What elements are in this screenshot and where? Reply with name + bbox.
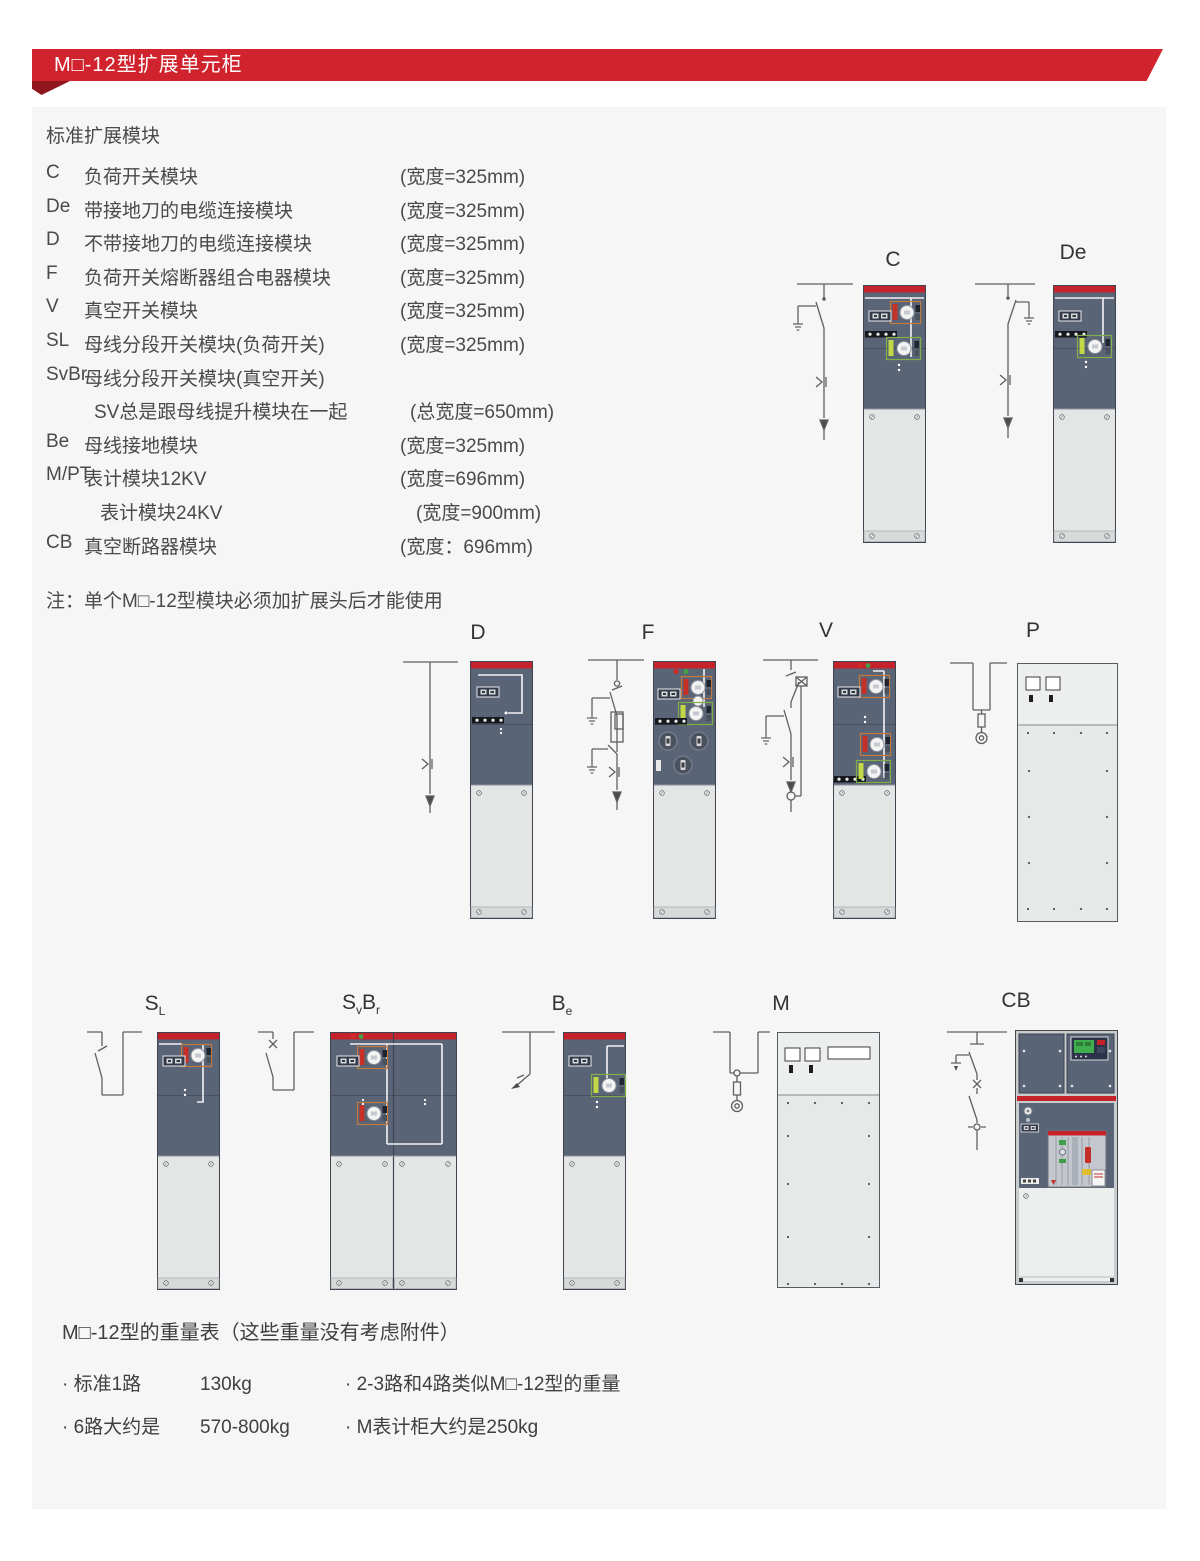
- module-code: F: [46, 263, 84, 297]
- banner-fold-icon: [32, 81, 70, 95]
- module-code: M/PT: [46, 464, 84, 498]
- module-row: SV总是跟母线提升模块在一起(总宽度=650mm): [46, 397, 646, 431]
- module-row: CB真空断路器模块(宽度：696mm): [46, 532, 646, 566]
- schematic-metering-m: [713, 1032, 770, 1112]
- module-code: [46, 498, 84, 532]
- module-name: 不带接地刀的电缆连接模块: [84, 229, 400, 263]
- cabinet-front-v: [834, 662, 896, 919]
- module-name: 母线分段开关模块(真空开关): [84, 364, 400, 398]
- cabinet-label-svbr: SvBr: [342, 991, 380, 1017]
- diagram-cb: [943, 1022, 1121, 1288]
- module-list: 标准扩展模块 C负荷开关模块(宽度=325mm) De带接地刀的电缆连接模块(宽…: [46, 121, 646, 565]
- cabinet-front-d: [471, 662, 533, 919]
- cabinet-label-p: P: [1026, 619, 1040, 643]
- weight-label: · 6路大约是: [62, 1412, 200, 1439]
- weight-label: · 标准1路: [62, 1369, 200, 1396]
- module-code: Be: [46, 431, 84, 465]
- module-code: C: [46, 162, 84, 196]
- schematic-bus-section-svbr: [258, 1032, 314, 1090]
- module-width: (宽度=325mm): [400, 330, 525, 364]
- module-width: (宽度=325mm): [400, 263, 525, 297]
- module-row: V真空开关模块(宽度=325mm): [46, 296, 646, 330]
- schematic-bus-section-sl: [87, 1032, 142, 1095]
- page-title: M□-12型扩展单元柜: [54, 49, 243, 81]
- diagram-be: [498, 1022, 629, 1294]
- module-width: (宽度=696mm): [400, 464, 525, 498]
- diagram-sl: [85, 1022, 223, 1294]
- cabinet-front-cb: [1016, 1031, 1118, 1285]
- diagram-de: [971, 276, 1121, 556]
- module-code: SL: [46, 330, 84, 364]
- module-list-title: 标准扩展模块: [46, 121, 646, 162]
- module-width: (宽度：696mm): [400, 532, 533, 566]
- cabinet-label-cb: CB: [1001, 989, 1030, 1013]
- weight-table-title: M□-12型的重量表（这些重量没有考虑附件）: [62, 1316, 620, 1345]
- module-width: (宽度=325mm): [400, 162, 525, 196]
- module-name: 真空开关模块: [84, 296, 400, 330]
- weight-value: 130kg: [200, 1374, 252, 1395]
- module-name: 表计模块24KV: [84, 498, 416, 532]
- weight-item: · 6路大约是570-800kg: [62, 1412, 345, 1439]
- cabinet-label-de: De: [1060, 241, 1087, 265]
- schematic-circuit-breaker-cb: [947, 1032, 1007, 1150]
- diagram-c: [788, 276, 930, 556]
- cabinet-front-sl: [158, 1033, 220, 1290]
- diagram-f: [580, 650, 720, 930]
- weight-item: · 标准1路130kg: [62, 1369, 345, 1396]
- cabinet-label-be: Be: [552, 992, 573, 1018]
- module-code: CB: [46, 532, 84, 566]
- weight-label: · 2-3路和4路类似M□-12型的重量: [345, 1374, 620, 1395]
- diagram-v: [756, 650, 903, 930]
- diagram-d: [400, 650, 535, 930]
- diagram-svbr: [256, 1022, 460, 1294]
- module-width: (宽度=325mm): [400, 196, 525, 230]
- weight-grid: · 标准1路130kg · 2-3路和4路类似M□-12型的重量 · 6路大约是…: [62, 1369, 620, 1439]
- module-row: Be母线接地模块(宽度=325mm): [46, 431, 646, 465]
- schematic-switch-fuse-f: [587, 660, 644, 810]
- module-width: (宽度=325mm): [400, 296, 525, 330]
- schematic-cable-earth-de: [975, 284, 1035, 438]
- module-code: [46, 397, 84, 431]
- weight-value: 570-800kg: [200, 1417, 290, 1438]
- cabinet-front-be: [564, 1033, 626, 1290]
- weight-table: M□-12型的重量表（这些重量没有考虑附件） · 标准1路130kg · 2-3…: [62, 1316, 620, 1439]
- module-row: SL母线分段开关模块(负荷开关)(宽度=325mm): [46, 330, 646, 364]
- module-name: 表计模块12KV: [84, 464, 400, 498]
- module-width: (宽度=325mm): [400, 229, 525, 263]
- module-row: C负荷开关模块(宽度=325mm): [46, 162, 646, 196]
- module-code: De: [46, 196, 84, 230]
- page: M□-12型扩展单元柜 标准扩展模块 C负荷开关模块(宽度=325mm) De带…: [0, 0, 1200, 1561]
- schematic-bus-earth-be: [502, 1032, 555, 1089]
- module-code: D: [46, 229, 84, 263]
- module-row: SvBr母线分段开关模块(真空开关): [46, 364, 646, 398]
- weight-item: · 2-3路和4路类似M□-12型的重量: [345, 1369, 620, 1396]
- cabinet-label-m: M: [772, 992, 790, 1016]
- schematic-vacuum-switch-v: [761, 660, 818, 812]
- cabinet-label-sl: SL: [145, 992, 166, 1018]
- cabinet-front-m: [778, 1033, 880, 1288]
- title-banner: M□-12型扩展单元柜: [32, 49, 1163, 81]
- cabinet-label-c: C: [885, 248, 900, 272]
- module-row: M/PT表计模块12KV(宽度=696mm): [46, 464, 646, 498]
- cabinet-label-d: D: [470, 621, 485, 645]
- diagram-m: [710, 1022, 883, 1292]
- module-name: SV总是跟母线提升模块在一起: [84, 397, 410, 431]
- module-name: 母线接地模块: [84, 431, 400, 465]
- cabinet-front-c: [864, 286, 926, 543]
- module-name: 真空断路器模块: [84, 532, 400, 566]
- module-width: (宽度=325mm): [400, 431, 525, 465]
- schematic-pt-p: [950, 663, 1007, 744]
- module-name: 母线分段开关模块(负荷开关): [84, 330, 400, 364]
- diagram-p: [946, 650, 1121, 930]
- module-width: (总宽度=650mm): [410, 397, 554, 431]
- cabinet-label-v: V: [819, 619, 833, 643]
- cabinet-front-f: [654, 662, 716, 919]
- module-width: (宽度=900mm): [416, 498, 541, 532]
- module-row: F负荷开关熔断器组合电器模块(宽度=325mm): [46, 263, 646, 297]
- schematic-cable-d: [403, 662, 458, 813]
- module-name: 带接地刀的电缆连接模块: [84, 196, 400, 230]
- cabinet-front-svbr: [331, 1033, 457, 1290]
- cabinet-front-p: [1018, 664, 1118, 922]
- usage-note: 注：单个M□-12型模块必须加扩展头后才能使用: [46, 586, 443, 613]
- module-row: De带接地刀的电缆连接模块(宽度=325mm): [46, 196, 646, 230]
- schematic-load-switch-c: [793, 284, 853, 440]
- module-row: D不带接地刀的电缆连接模块(宽度=325mm): [46, 229, 646, 263]
- cabinet-front-de: [1054, 286, 1116, 543]
- weight-item: · M表计柜大约是250kg: [345, 1412, 620, 1439]
- module-row: 表计模块24KV(宽度=900mm): [46, 498, 646, 532]
- module-name: 负荷开关熔断器组合电器模块: [84, 263, 400, 297]
- cabinet-label-f: F: [642, 621, 655, 645]
- weight-label: · M表计柜大约是250kg: [345, 1417, 538, 1438]
- module-code: V: [46, 296, 84, 330]
- module-name: 负荷开关模块: [84, 162, 400, 196]
- module-code: SvBr: [46, 364, 84, 398]
